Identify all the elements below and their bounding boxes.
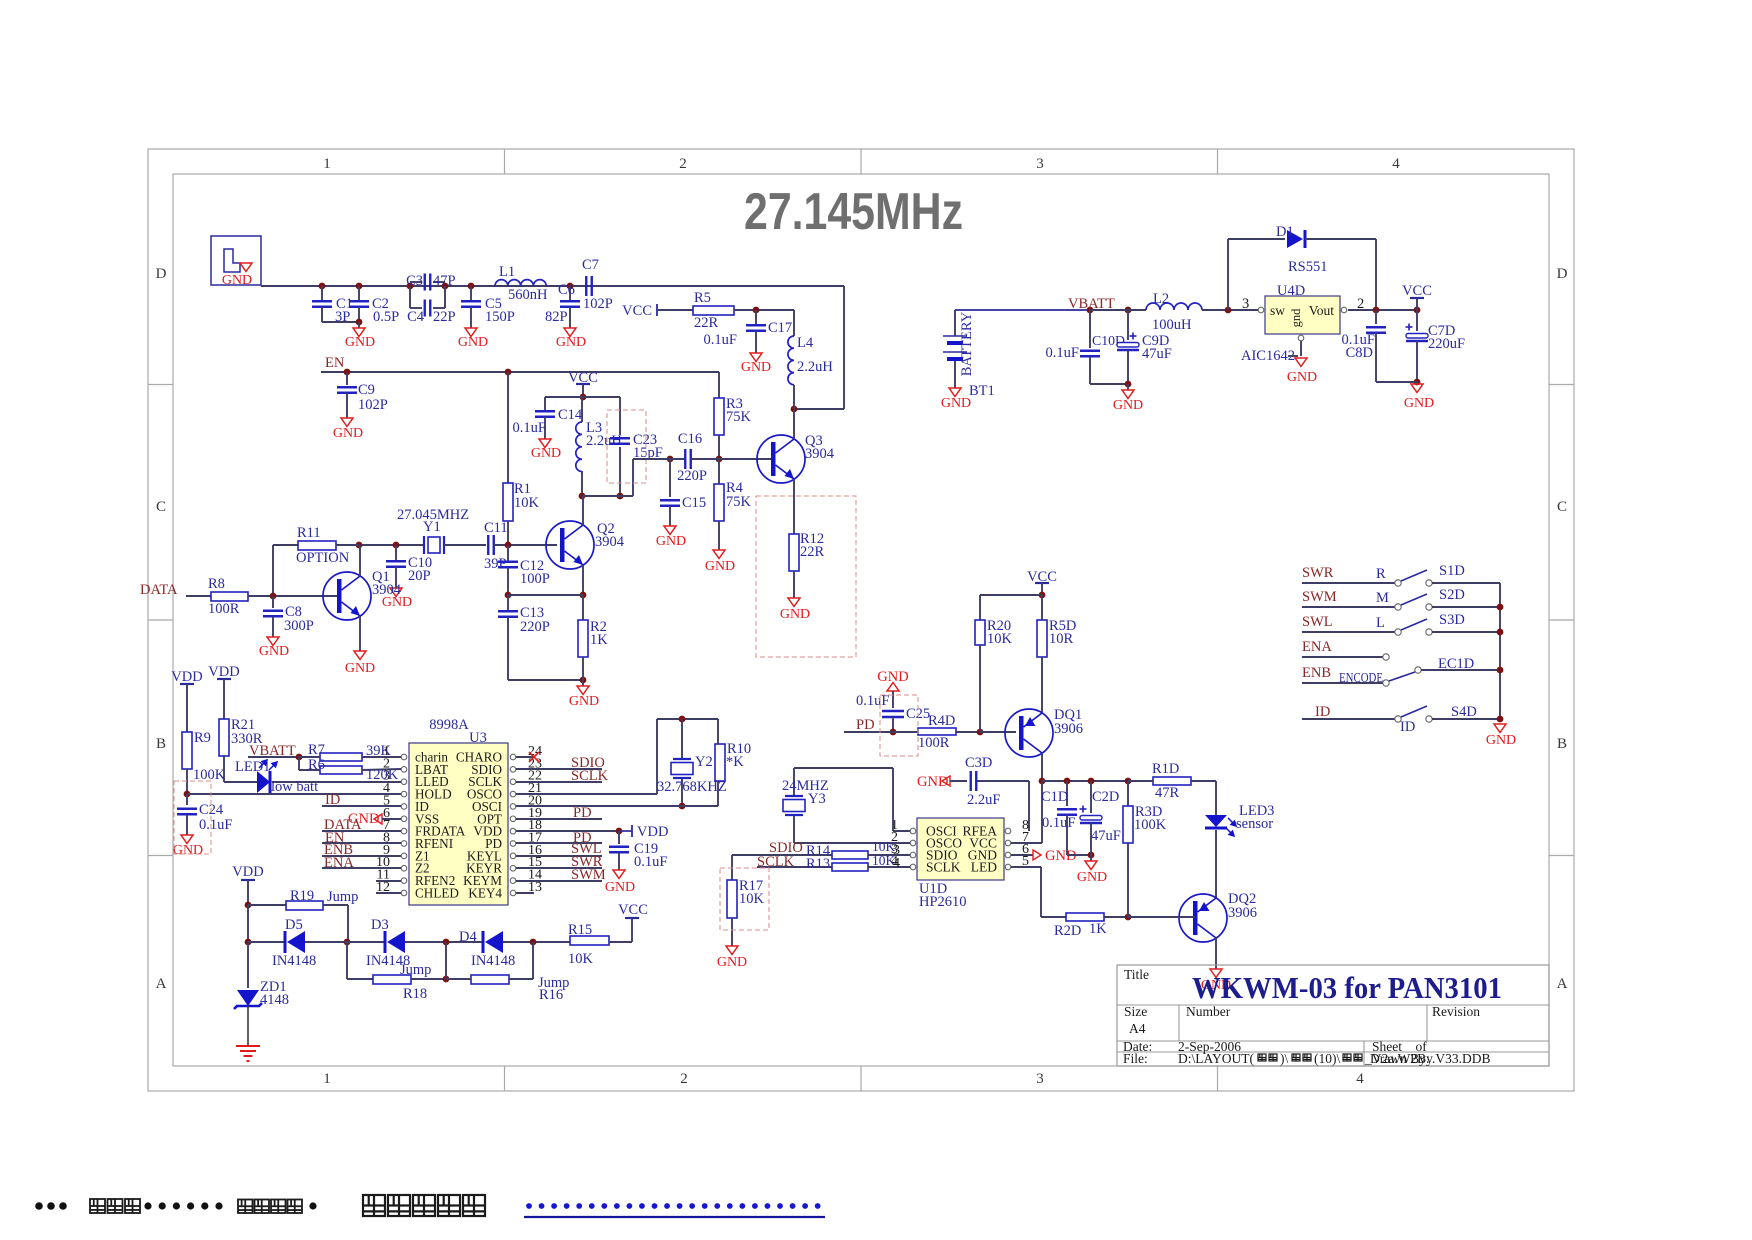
svg-text:2.2uH: 2.2uH [586, 433, 622, 449]
svg-text:39K: 39K [366, 743, 392, 759]
svg-text:C: C [156, 499, 166, 515]
svg-text:D: D [1557, 266, 1568, 282]
svg-text:220P: 220P [520, 619, 550, 635]
svg-text:R2D: R2D [1054, 923, 1081, 939]
svg-text:R9: R9 [194, 730, 211, 746]
svg-text:low batt: low batt [271, 779, 318, 795]
svg-text:2.2uH: 2.2uH [797, 359, 833, 375]
svg-text:B: B [1557, 736, 1567, 752]
svg-text:GND: GND [1113, 398, 1143, 413]
svg-text:GND: GND [1077, 870, 1107, 885]
svg-text:102P: 102P [583, 296, 613, 312]
svg-text:GND: GND [780, 607, 810, 622]
svg-text:(10)\: (10)\ [1314, 1051, 1340, 1066]
svg-text:100R: 100R [918, 735, 950, 751]
svg-text:0.1uF: 0.1uF [634, 854, 667, 870]
svg-text:100P: 100P [520, 571, 550, 587]
svg-text:L2: L2 [1153, 291, 1169, 307]
svg-text:SWM: SWM [1302, 589, 1337, 605]
svg-text:Jump: Jump [400, 962, 431, 978]
svg-text:220P: 220P [677, 468, 707, 484]
svg-text:Vout: Vout [1309, 303, 1335, 318]
svg-text:120K: 120K [366, 767, 399, 783]
svg-text:GND: GND [1045, 848, 1076, 864]
svg-text:ID: ID [1400, 719, 1415, 735]
svg-text:C8D: C8D [1346, 345, 1373, 361]
svg-text:PD: PD [856, 717, 875, 733]
svg-text:M: M [1376, 590, 1389, 606]
svg-text:ENA: ENA [1302, 639, 1332, 655]
svg-text:10K: 10K [514, 495, 540, 511]
svg-text:3906: 3906 [1228, 905, 1257, 921]
svg-text:1K: 1K [1089, 921, 1107, 937]
svg-text:B: B [156, 736, 166, 752]
svg-text:GND: GND [458, 335, 488, 350]
svg-text:C3: C3 [406, 273, 423, 289]
svg-text:S1D: S1D [1439, 563, 1465, 579]
svg-text:Size: Size [1124, 1004, 1147, 1019]
svg-text:VDD: VDD [171, 669, 202, 685]
svg-text:3P: 3P [335, 309, 350, 325]
svg-text:R6: R6 [308, 757, 325, 773]
svg-text:3: 3 [1036, 156, 1044, 172]
svg-text:Jump: Jump [327, 889, 358, 905]
svg-text:C9: C9 [358, 382, 375, 398]
svg-text:4: 4 [1356, 1071, 1364, 1087]
svg-text:Title: Title [1124, 967, 1149, 982]
svg-text:R8: R8 [208, 576, 225, 592]
svg-text:OPTION: OPTION [296, 550, 350, 566]
svg-text:U4D: U4D [1277, 283, 1305, 299]
svg-text:Y2: Y2 [695, 754, 713, 770]
svg-text:VDD: VDD [637, 824, 668, 840]
svg-text:SCLK: SCLK [926, 860, 961, 875]
svg-text:A: A [1557, 976, 1568, 992]
svg-text:LED: LED [971, 860, 997, 875]
svg-text:CHLED: CHLED [415, 885, 459, 900]
svg-text:0.5P: 0.5P [373, 309, 399, 325]
svg-text:R5: R5 [694, 290, 711, 306]
svg-text:Y3: Y3 [808, 791, 826, 807]
svg-text:330R: 330R [231, 731, 263, 747]
svg-text:22R: 22R [800, 544, 825, 560]
svg-text:GND: GND [717, 955, 747, 970]
svg-text:Drawn By:: Drawn By: [1370, 1051, 1430, 1066]
svg-text:82P: 82P [545, 309, 568, 325]
svg-text:2: 2 [680, 1071, 688, 1087]
svg-text:47P: 47P [433, 273, 456, 289]
svg-text:GND: GND [569, 694, 599, 709]
svg-text:GND: GND [705, 559, 735, 574]
svg-text:BATTERY: BATTERY [959, 311, 975, 376]
svg-text:4: 4 [1392, 156, 1400, 172]
svg-text:1K: 1K [590, 632, 608, 648]
svg-text:C14: C14 [558, 407, 583, 423]
svg-text:VDD: VDD [232, 864, 263, 880]
svg-text:L4: L4 [797, 335, 814, 351]
svg-text:102P: 102P [358, 397, 388, 413]
svg-text:R1D: R1D [1152, 761, 1179, 777]
svg-text:4148: 4148 [260, 992, 289, 1008]
svg-text:4: 4 [893, 856, 900, 871]
svg-text:GND: GND [605, 880, 635, 895]
svg-text:3906: 3906 [1054, 721, 1083, 737]
svg-text:DATA: DATA [140, 582, 178, 598]
svg-text:sensor: sensor [1236, 816, 1273, 832]
svg-text:R: R [1376, 566, 1386, 582]
svg-text:IN4148: IN4148 [471, 953, 515, 969]
svg-text:C1D: C1D [1041, 789, 1068, 805]
svg-text:220uF: 220uF [1428, 336, 1465, 352]
svg-text:GND: GND [531, 446, 561, 461]
svg-text:0.1uF: 0.1uF [1046, 345, 1079, 361]
svg-text:sw: sw [1270, 303, 1285, 318]
svg-text:47R: 47R [1155, 785, 1180, 801]
svg-text:GND: GND [173, 843, 203, 858]
svg-text:1: 1 [323, 156, 331, 172]
svg-text:D5: D5 [285, 917, 303, 933]
svg-text:C3D: C3D [965, 755, 992, 771]
svg-text:R16: R16 [539, 987, 563, 1003]
svg-text:SWR: SWR [1302, 565, 1334, 581]
svg-text:R7: R7 [308, 742, 325, 758]
svg-text:3904: 3904 [805, 446, 835, 462]
svg-text:C6: C6 [558, 282, 575, 298]
svg-text:GND: GND [222, 273, 252, 288]
svg-text:3904: 3904 [595, 534, 625, 550]
svg-text:150P: 150P [485, 309, 515, 325]
svg-text:47uF: 47uF [1091, 828, 1121, 844]
svg-text:GND: GND [741, 360, 771, 375]
svg-text:D3: D3 [371, 917, 389, 933]
svg-text:ID: ID [1315, 704, 1330, 720]
svg-text:GND: GND [1287, 370, 1317, 385]
svg-text:C11: C11 [484, 520, 508, 536]
svg-text:10K: 10K [872, 853, 896, 868]
svg-text:2: 2 [679, 156, 687, 172]
svg-text:ENCODE: ENCODE [1339, 670, 1383, 685]
svg-text:32.768KHZ: 32.768KHZ [657, 779, 727, 795]
svg-text:100K: 100K [1134, 817, 1167, 833]
svg-text:File:: File: [1123, 1051, 1148, 1066]
svg-text:Y1: Y1 [423, 519, 441, 535]
svg-text:C2D: C2D [1092, 789, 1119, 805]
svg-text:SWL: SWL [1302, 614, 1333, 630]
svg-text:3: 3 [1036, 1071, 1044, 1087]
svg-text:100R: 100R [208, 601, 240, 617]
svg-text:C7: C7 [582, 257, 599, 273]
svg-text:R11: R11 [297, 525, 321, 541]
svg-text:S4D: S4D [1451, 704, 1477, 720]
svg-text:75K: 75K [726, 494, 752, 510]
svg-text:GND: GND [1404, 396, 1434, 411]
svg-text:AIC1642: AIC1642 [1241, 348, 1295, 364]
svg-text:560nH: 560nH [508, 287, 548, 303]
svg-text:GND: GND [941, 396, 971, 411]
svg-text:GND: GND [1486, 733, 1516, 748]
svg-text:D: D [156, 266, 167, 282]
svg-text:A: A [156, 976, 167, 992]
svg-text:R19: R19 [290, 888, 314, 904]
svg-text:22P: 22P [433, 309, 456, 325]
svg-text:R15: R15 [568, 922, 592, 938]
svg-text:0.1uF: 0.1uF [704, 332, 737, 348]
svg-text:47uF: 47uF [1142, 346, 1172, 362]
svg-text:GND: GND [556, 335, 586, 350]
svg-text:BT1: BT1 [969, 383, 995, 399]
svg-text:VCC: VCC [1402, 283, 1432, 299]
svg-text:D1: D1 [1276, 224, 1294, 240]
svg-text:IN4148: IN4148 [272, 953, 316, 969]
svg-text:GND: GND [259, 644, 289, 659]
svg-text:VDD: VDD [208, 664, 239, 680]
svg-text:C17: C17 [768, 320, 792, 336]
svg-text:10K: 10K [987, 631, 1013, 647]
svg-text:U3: U3 [469, 730, 487, 746]
svg-text:10K: 10K [568, 951, 594, 967]
svg-text:3: 3 [1242, 296, 1249, 312]
svg-text:GND: GND [333, 426, 363, 441]
svg-text:27.145MHz: 27.145MHz [744, 183, 963, 241]
svg-text:S2D: S2D [1439, 587, 1465, 603]
svg-text:0.1uF: 0.1uF [199, 817, 232, 833]
svg-text:C4: C4 [407, 309, 425, 325]
svg-text:EC1D: EC1D [1438, 656, 1474, 672]
svg-text:EN: EN [325, 355, 345, 371]
svg-text:RS551: RS551 [1288, 259, 1328, 275]
svg-text:*K: *K [726, 754, 744, 770]
svg-text:10R: 10R [1049, 631, 1074, 647]
svg-text:C15: C15 [682, 495, 706, 511]
svg-text:8998A: 8998A [429, 717, 469, 733]
svg-text:R4D: R4D [928, 713, 955, 729]
svg-text:39P: 39P [484, 556, 507, 572]
svg-text:VCC: VCC [618, 902, 648, 918]
svg-text:KEY4: KEY4 [468, 885, 502, 900]
svg-text:300P: 300P [284, 618, 314, 634]
svg-text:)\: )\ [1280, 1051, 1288, 1066]
svg-text:R18: R18 [403, 986, 427, 1002]
svg-text:VCC: VCC [622, 303, 652, 319]
svg-text:D:\LAYOUT(: D:\LAYOUT( [1178, 1051, 1255, 1066]
svg-text:C: C [1557, 499, 1567, 515]
svg-text:GND: GND [345, 661, 375, 676]
svg-text:100uH: 100uH [1152, 317, 1192, 333]
svg-text:L1: L1 [499, 264, 515, 280]
svg-text:gnd: gnd [1289, 308, 1303, 328]
svg-text:10K: 10K [739, 891, 765, 907]
svg-text:0.1uF: 0.1uF [1042, 815, 1075, 831]
svg-text:20P: 20P [408, 568, 431, 584]
svg-text:Revision: Revision [1432, 1004, 1480, 1019]
svg-text:L: L [1376, 615, 1385, 631]
svg-text:2.2uF: 2.2uF [967, 792, 1000, 808]
svg-text:10K: 10K [872, 839, 896, 854]
svg-text:ENB: ENB [1302, 665, 1331, 681]
svg-text:1: 1 [323, 1071, 331, 1087]
svg-text:HP2610: HP2610 [919, 894, 967, 910]
svg-text:S3D: S3D [1439, 612, 1465, 628]
svg-text:GND: GND [656, 534, 686, 549]
svg-text:A4: A4 [1129, 1021, 1146, 1036]
svg-text:3904: 3904 [372, 582, 402, 598]
svg-text:Number: Number [1186, 1004, 1231, 1019]
svg-text:0.1uF: 0.1uF [513, 420, 546, 436]
svg-text:WKWM-03 for PAN3101: WKWM-03 for PAN3101 [1192, 970, 1502, 1005]
svg-text:75K: 75K [726, 409, 752, 425]
svg-text:C16: C16 [678, 431, 702, 447]
svg-text:GND: GND [345, 335, 375, 350]
svg-text:D4: D4 [459, 929, 477, 945]
svg-text:22R: 22R [694, 315, 719, 331]
svg-text:R13: R13 [806, 856, 830, 872]
